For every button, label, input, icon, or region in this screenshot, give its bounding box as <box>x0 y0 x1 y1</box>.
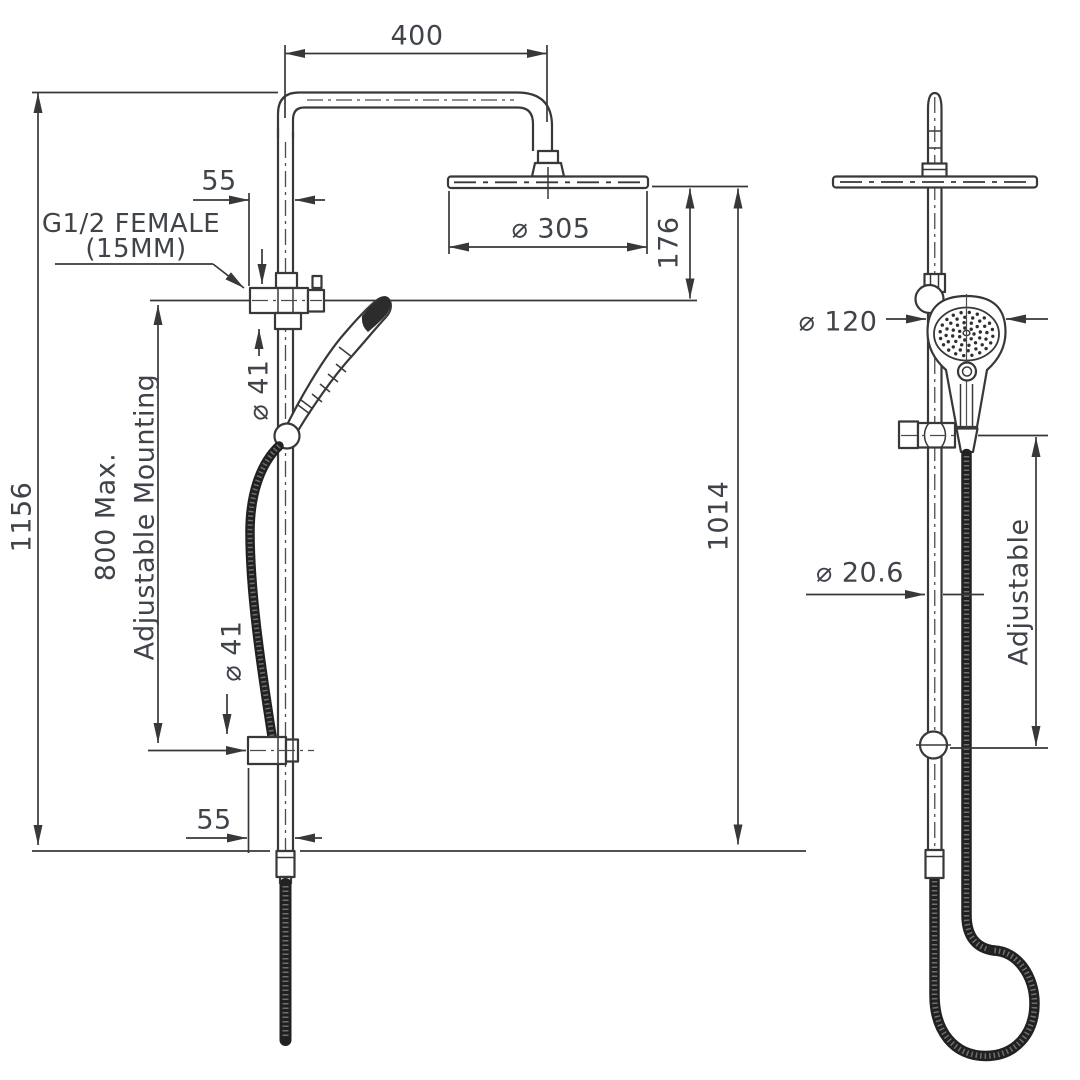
wall-bracket-lower <box>248 737 314 764</box>
side-view: ⌀ 120 ⌀ 20.6 Adjustable <box>799 93 1048 1056</box>
dim-1014-label: 1014 <box>704 481 735 552</box>
supply-knob <box>916 732 951 759</box>
wall-bracket-upper <box>250 273 324 329</box>
dim-dia20-6: ⌀ 20.6 <box>806 558 984 595</box>
head-stem-nut <box>538 151 558 163</box>
dim-1156-label: 1156 <box>7 482 38 553</box>
slider-bracket-side <box>899 422 956 449</box>
dim-176-label: 176 <box>654 216 685 269</box>
rain-shower-head-side <box>833 164 1037 188</box>
inlet-label-line2: (15MM) <box>85 234 186 264</box>
technical-drawing-canvas: 400 1156 55 G1/2 FEMALE (15MM) ⌀ 41 <box>0 0 1080 1080</box>
dim-800-label-line2: Adjustable Mounting <box>130 374 161 661</box>
dim-dia41-upper-label: ⌀ 41 <box>244 359 275 420</box>
hose-front <box>250 446 279 736</box>
dim-800-adjustable-mounting: 800 Max. Adjustable Mounting <box>91 305 247 751</box>
dim-dia20-6-label: ⌀ 20.6 <box>816 558 904 589</box>
shower-system-drawing: 400 1156 55 G1/2 FEMALE (15MM) ⌀ 41 <box>0 0 1080 1080</box>
dim-dia305: ⌀ 305 <box>449 191 647 254</box>
dim-55-bottom-label: 55 <box>196 805 231 836</box>
dim-1014: 1014 <box>704 189 739 845</box>
bracket-nipple <box>313 276 322 288</box>
dim-55-top-label: 55 <box>201 166 236 197</box>
dim-dia41-lower-label: ⌀ 41 <box>217 620 248 681</box>
outlet-connector-side <box>926 850 944 878</box>
dim-dia305-label: ⌀ 305 <box>512 214 591 245</box>
dim-400-label: 400 <box>390 21 443 52</box>
inlet-nut <box>276 273 297 288</box>
inlet-callout: G1/2 FEMALE (15MM) <box>42 209 244 288</box>
handle-hose-connector <box>957 429 978 453</box>
dim-55-bottom: 55 <box>186 768 322 853</box>
dim-dia120-label: ⌀ 120 <box>799 307 878 338</box>
bracket-lower-nut <box>275 313 301 329</box>
shower-arm <box>278 93 552 152</box>
rain-shower-head-front <box>448 151 648 199</box>
front-view: 400 1156 55 G1/2 FEMALE (15MM) ⌀ 41 <box>7 21 807 1041</box>
dim-dia41-lower: ⌀ 41 <box>217 620 248 734</box>
dim-176: 176 <box>652 187 748 299</box>
dim-adjustable-label: Adjustable <box>1004 518 1035 665</box>
dim-800-label-line1: 800 Max. <box>91 453 122 582</box>
mode-button <box>958 363 976 381</box>
